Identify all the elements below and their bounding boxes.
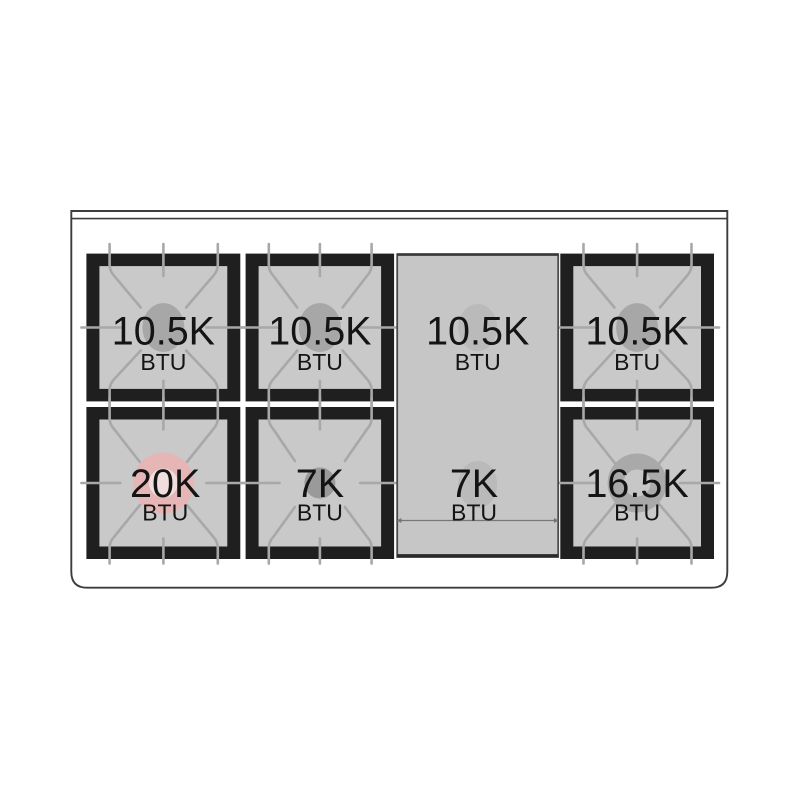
svg-text:10.5K: 10.5K xyxy=(426,310,529,354)
svg-text:10.5K: 10.5K xyxy=(112,310,215,354)
svg-text:BTU: BTU xyxy=(451,500,497,526)
svg-text:10.5K: 10.5K xyxy=(268,310,371,354)
svg-text:10.5K: 10.5K xyxy=(585,310,688,354)
svg-text:BTU: BTU xyxy=(297,349,343,375)
svg-text:BTU: BTU xyxy=(455,349,501,375)
svg-text:BTU: BTU xyxy=(614,500,660,526)
svg-text:BTU: BTU xyxy=(140,349,186,375)
svg-text:BTU: BTU xyxy=(614,349,660,375)
svg-text:BTU: BTU xyxy=(297,500,343,526)
svg-text:BTU: BTU xyxy=(142,500,188,526)
